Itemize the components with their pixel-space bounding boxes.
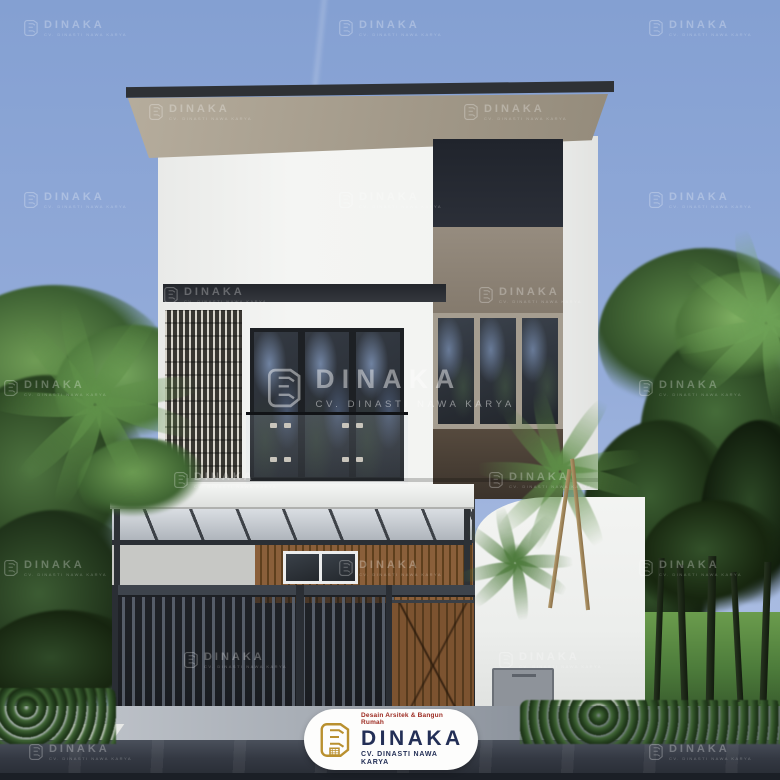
dinaka-logo-badge: Desain Arsitek & Bangun Rumah DINAKA CV.… bbox=[304, 709, 478, 770]
glass-clamp bbox=[270, 457, 277, 462]
gate-top-rail bbox=[112, 585, 478, 597]
glass-clamp bbox=[270, 423, 277, 428]
tower-taupe-panel bbox=[433, 227, 563, 313]
watermark-building-icon bbox=[648, 18, 665, 38]
dinaka-watermark: DINAKACV. DINASTI NAWA KARYA bbox=[648, 18, 752, 38]
window-pane bbox=[322, 554, 355, 581]
dinaka-watermark: DINAKACV. DINASTI NAWA KARYA bbox=[338, 18, 442, 38]
dinaka-building-icon bbox=[318, 719, 354, 761]
sky-contrail bbox=[313, 0, 327, 90]
dinaka-watermark: DINAKACV. DINASTI NAWA KARYA bbox=[23, 190, 127, 210]
logo-tagline: Desain Arsitek & Bangun Rumah bbox=[361, 712, 464, 727]
palm-crown-core bbox=[752, 300, 780, 324]
clerestory-window-strip bbox=[163, 284, 446, 302]
ground-floor-window bbox=[283, 551, 358, 584]
window-pane bbox=[286, 554, 319, 581]
gate-vertical-bars bbox=[112, 597, 394, 715]
architectural-render: Desain Arsitek & Bangun Rumah DINAKA CV.… bbox=[0, 0, 780, 780]
glass-clamp bbox=[356, 423, 363, 428]
hedge bbox=[520, 700, 780, 744]
glass-clamp bbox=[356, 457, 363, 462]
glass-clamp bbox=[284, 423, 291, 428]
watermark-building-icon bbox=[23, 190, 40, 210]
palm-crown-core bbox=[501, 544, 529, 568]
gate-stile bbox=[386, 585, 392, 715]
logo-company: CV. DINASTI NAWA KARYA bbox=[361, 751, 464, 767]
gate-stile bbox=[296, 585, 304, 715]
tower-dark-panel bbox=[433, 139, 563, 227]
road-edge-shadow bbox=[0, 773, 780, 780]
dinaka-watermark: DINAKACV. DINASTI NAWA KARYA bbox=[23, 18, 127, 38]
logo-text-block: Desain Arsitek & Bangun Rumah DINAKA CV.… bbox=[361, 712, 464, 767]
palm-crown-core bbox=[81, 380, 109, 404]
dinaka-watermark: DINAKACV. DINASTI NAWA KARYA bbox=[648, 190, 752, 210]
watermark-building-icon bbox=[23, 18, 40, 38]
glass-clamp bbox=[284, 457, 291, 462]
wood-gate-door bbox=[392, 600, 474, 715]
watermark-building-icon bbox=[648, 190, 665, 210]
ground-floor-wall bbox=[112, 545, 258, 589]
tower-window-pane bbox=[438, 318, 474, 424]
glass-clamp bbox=[342, 423, 349, 428]
glass-balustrade bbox=[246, 412, 408, 484]
hedge bbox=[0, 688, 116, 744]
logo-name: DINAKA bbox=[361, 727, 464, 751]
glass-clamp bbox=[342, 457, 349, 462]
watermark-building-icon bbox=[338, 18, 355, 38]
